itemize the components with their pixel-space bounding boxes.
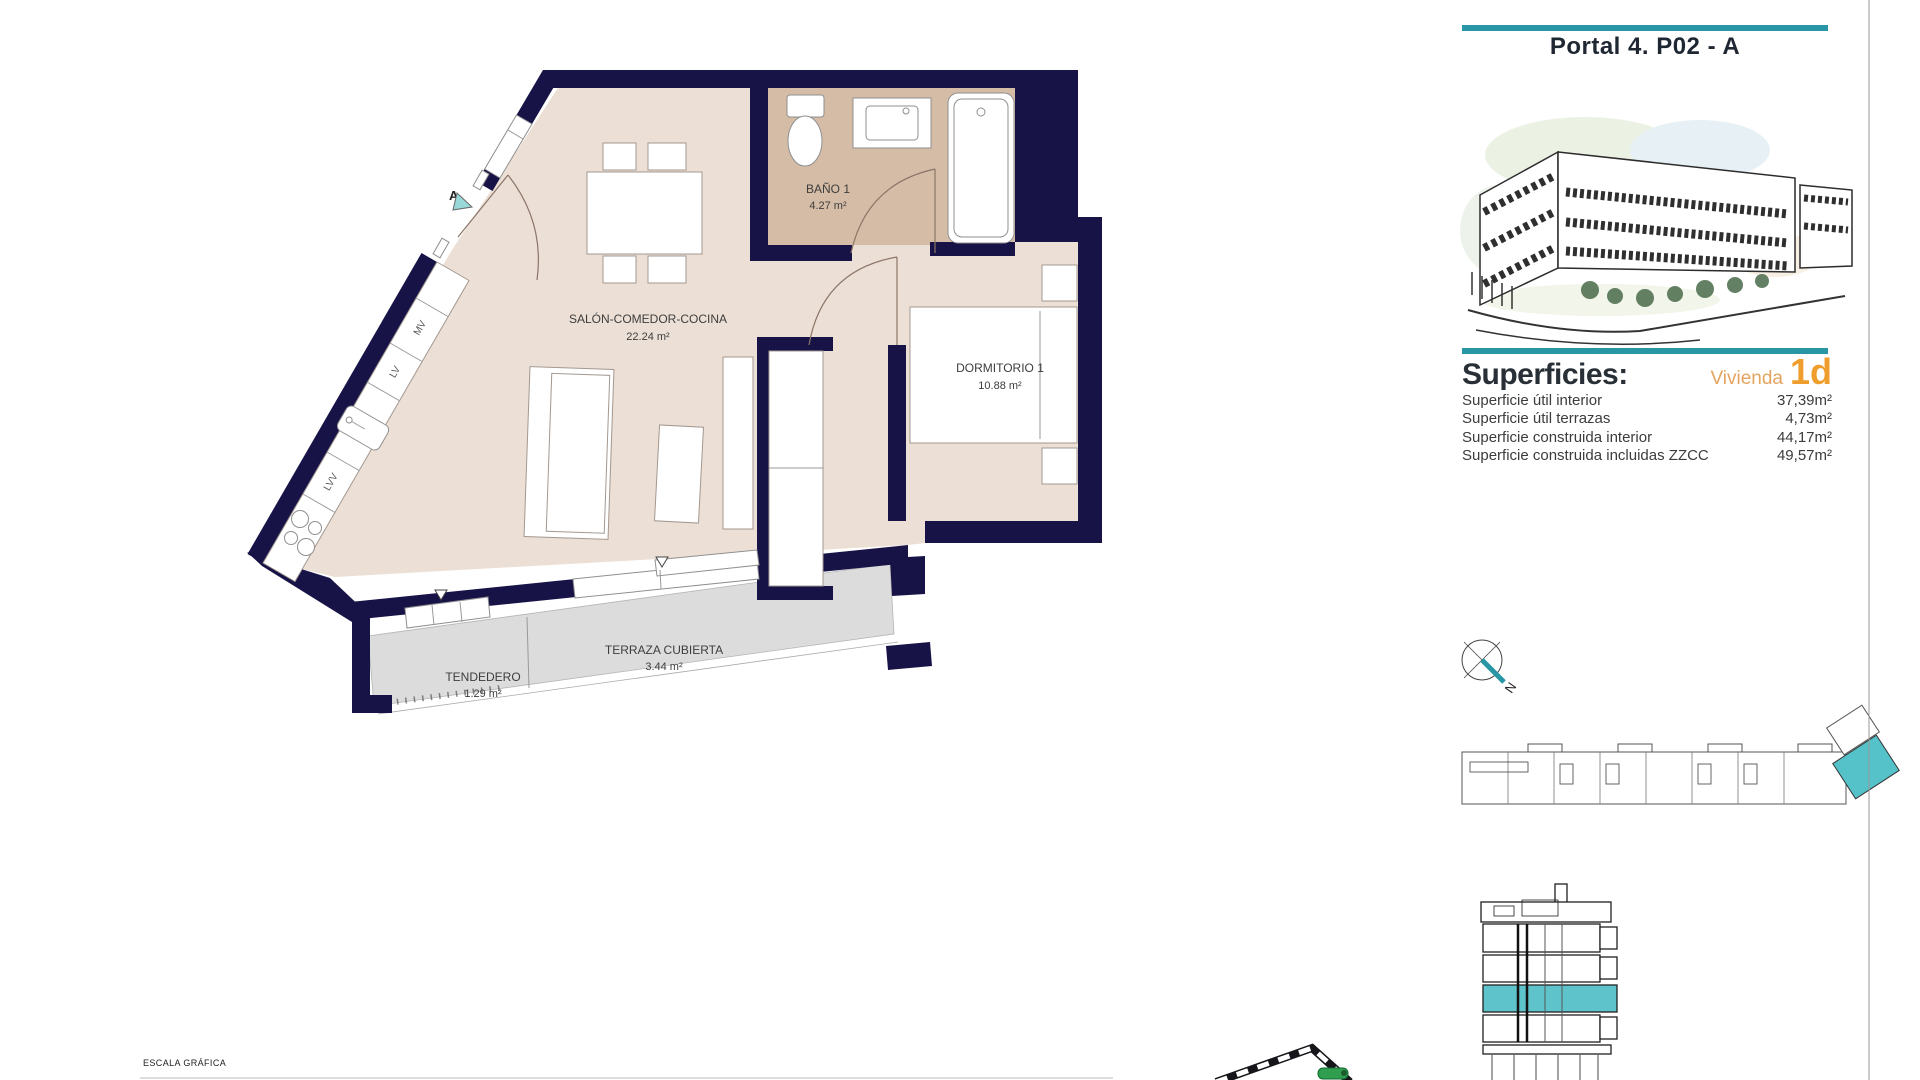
header-divider-bar [1462, 25, 1828, 31]
site-plan-fragment [1216, 1048, 1350, 1080]
scale-label: ESCALA GRÁFICA [143, 1058, 226, 1068]
room-label-salon: SALÓN-COMEDOR-COCINA [569, 311, 727, 326]
room-area-salon: 22.24 m² [626, 331, 670, 343]
page-title: Portal 4. P02 - A [1462, 33, 1828, 61]
room-area-terraza: 3.44 m² [645, 661, 683, 673]
building-section [1481, 884, 1617, 1080]
sideboard [723, 357, 753, 529]
bathtub-icon [948, 93, 1014, 243]
building-illustration [1460, 117, 1852, 344]
vivienda-value: 1d [1790, 357, 1832, 387]
compass-needle [1482, 660, 1504, 682]
superficies-row: Superficie útil interior 37,39m² [1462, 392, 1832, 410]
superficies-row-label: Superficie construida incluidas ZZCC [1462, 447, 1709, 465]
wardrobe [769, 351, 823, 586]
superficies-row-value: 4,73m² [1785, 410, 1832, 428]
superficies-divider-bar [1462, 348, 1828, 354]
superficies-row: Superficie útil terrazas 4,73m² [1462, 410, 1832, 428]
room-label-dormitorio: DORMITORIO 1 [956, 361, 1044, 375]
superficies-row: Superficie construida incluidas ZZCC 49,… [1462, 447, 1832, 465]
coffee-table [655, 425, 704, 523]
superficies-row: Superficie construida interior 44,17m² [1462, 429, 1832, 447]
superficies-heading: Superficies: [1462, 358, 1628, 392]
room-label-bano: BAÑO 1 [806, 182, 850, 196]
floorplan: MV LV LVV A SALÓN-COMEDOR-COCINA 22.24 m… [247, 70, 1102, 714]
room-label-tendedero: TENDEDERO [445, 670, 520, 684]
sheet-drawing: MV LV LVV A SALÓN-COMEDOR-COCINA 22.24 m… [0, 0, 1920, 1080]
superficies-row-label: Superficie útil terrazas [1462, 410, 1610, 428]
room-area-tendedero: 1.29 m² [464, 688, 502, 700]
room-label-terraza: TERRAZA CUBIERTA [605, 643, 723, 657]
superficies-panel: Superficies: Vivienda 1d Superficie útil… [1462, 357, 1832, 466]
room-area-dormitorio: 10.88 m² [978, 380, 1022, 392]
superficies-row-label: Superficie útil interior [1462, 392, 1602, 410]
sink-icon [853, 98, 931, 148]
sofa [524, 367, 614, 540]
superficies-row-value: 49,57m² [1777, 447, 1832, 465]
key-plan [1462, 705, 1899, 804]
superficies-row-value: 44,17m² [1777, 429, 1832, 447]
section-highlight-floor [1483, 985, 1617, 1012]
compass: N [1462, 640, 1519, 696]
room-area-bano: 4.27 m² [809, 200, 847, 212]
vivienda-label: Vivienda [1710, 368, 1783, 390]
superficies-row-value: 37,39m² [1777, 392, 1832, 410]
compass-north-label: N [1502, 680, 1520, 696]
toilet-icon [787, 95, 824, 166]
plan-sheet: MV LV LVV A SALÓN-COMEDOR-COCINA 22.24 m… [0, 0, 1920, 1080]
superficies-row-label: Superficie construida interior [1462, 429, 1652, 447]
superficies-header: Superficies: Vivienda 1d [1462, 357, 1832, 392]
